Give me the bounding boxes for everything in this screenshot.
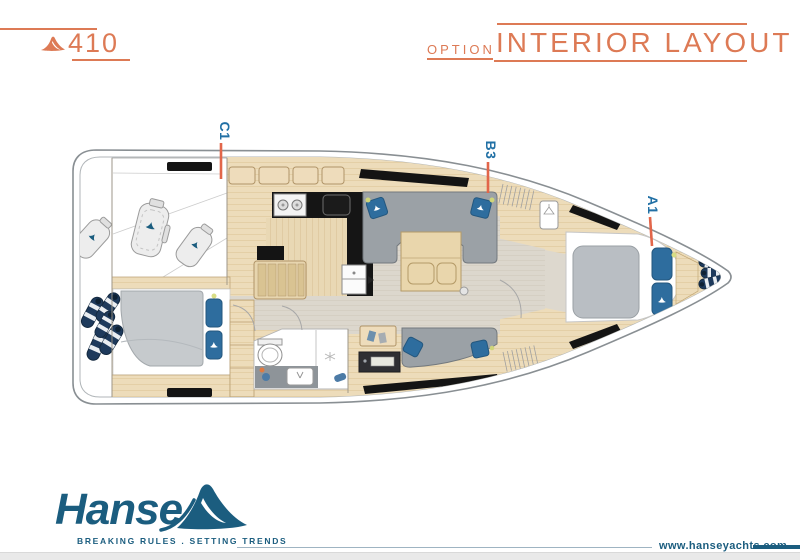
cabin-label-c1: C1 bbox=[217, 122, 233, 141]
galley-locker bbox=[229, 167, 255, 184]
cabin-label-b3: B3 bbox=[483, 141, 499, 160]
reading-light bbox=[672, 253, 677, 258]
toilet bbox=[258, 339, 282, 366]
cabin-label-a1: A1 bbox=[645, 196, 661, 215]
aft-wardrobe bbox=[230, 300, 254, 397]
berth-cushion bbox=[206, 299, 222, 327]
brochure-page: { "header": { "model": "410", "option_la… bbox=[0, 0, 800, 559]
aft-storage-room bbox=[112, 158, 227, 285]
engine-panel bbox=[257, 246, 284, 260]
hanse-logo: Hanse bbox=[55, 476, 250, 545]
footer-accent-bar bbox=[753, 545, 800, 549]
hull-window bbox=[167, 388, 212, 397]
reading-light bbox=[366, 198, 371, 203]
sink bbox=[323, 195, 350, 215]
galley-locker bbox=[259, 167, 289, 184]
settee-cushion bbox=[471, 340, 490, 359]
companionway-steps bbox=[254, 261, 306, 299]
vberth-mattress bbox=[573, 246, 639, 318]
galley-locker bbox=[322, 167, 344, 184]
table-handle bbox=[460, 287, 468, 295]
galley-locker bbox=[293, 167, 318, 184]
reading-light bbox=[212, 294, 217, 299]
reading-light bbox=[490, 198, 495, 203]
brand-tagline: BREAKING RULES . SETTING TRENDS bbox=[77, 536, 287, 546]
salon-table bbox=[401, 232, 461, 291]
berth-cushion bbox=[652, 248, 672, 280]
reading-light bbox=[490, 346, 495, 351]
stowage-drawer bbox=[360, 326, 396, 346]
hull-window bbox=[167, 162, 212, 171]
washbasin bbox=[287, 368, 313, 385]
brand-wordmark: Hanse bbox=[55, 485, 183, 534]
footer-rule bbox=[237, 547, 652, 548]
bath-accessory bbox=[262, 373, 270, 381]
